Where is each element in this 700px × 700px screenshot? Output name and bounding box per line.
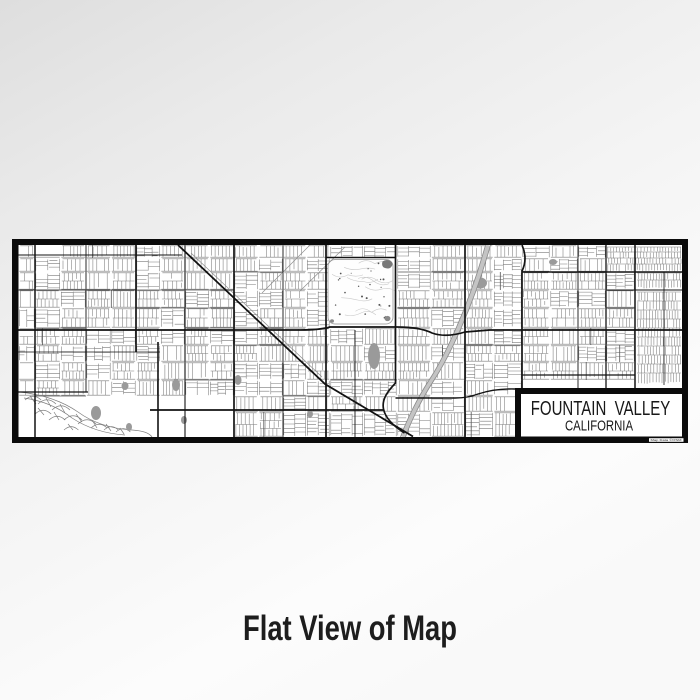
svg-text:FOUNTAIN VALLEY: FOUNTAIN VALLEY: [531, 398, 671, 420]
svg-text:CALIFORNIA: CALIFORNIA: [565, 418, 633, 434]
svg-text:Flat View of Map: Flat View of Map: [243, 609, 457, 648]
svg-text:Map Data ©OSM: Map Data ©OSM: [651, 438, 683, 442]
